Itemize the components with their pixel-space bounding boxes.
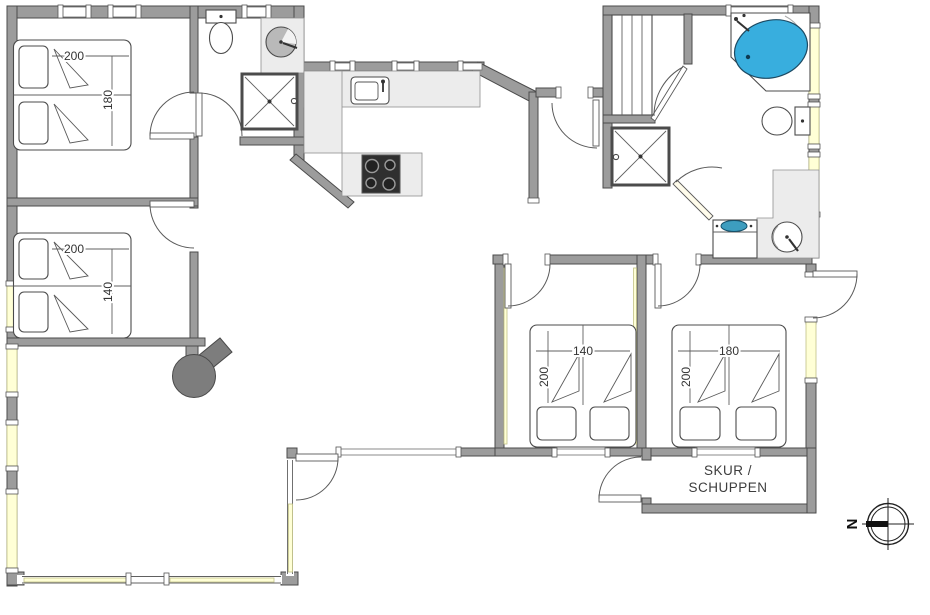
door-bathroom-right — [673, 167, 722, 220]
svg-text:SCHUPPEN: SCHUPPEN — [688, 480, 767, 495]
bed-dimension-label: 140 — [573, 344, 593, 358]
door-bathroom-top — [196, 93, 242, 136]
bed-dimension-label: 200 — [537, 367, 551, 387]
door-shed — [599, 457, 641, 502]
double-bed-bottom-right: 180 200 — [672, 325, 786, 447]
window-bay-walls — [17, 460, 294, 585]
sauna — [612, 15, 652, 115]
floor-plan-page: 200 180 200 140 140 200 180 200 — [0, 0, 930, 615]
kitchen — [304, 71, 480, 196]
floor-plan-drawing: 200 180 200 140 140 200 180 200 — [0, 0, 930, 615]
pillow — [590, 407, 629, 440]
bed-dimension-label: 180 — [101, 90, 115, 110]
door-bedroom-bottom-right — [655, 264, 700, 308]
washbasin-icon — [261, 18, 304, 73]
pillow — [19, 292, 48, 332]
bed-dimension-label: 200 — [64, 49, 84, 63]
kitchen-counter-left — [304, 71, 342, 153]
door-main-entrance — [552, 100, 599, 148]
door-bedroom-top-left — [150, 92, 194, 139]
door-exterior-east — [813, 271, 857, 318]
bed-dimension-label: 200 — [64, 242, 84, 256]
shower-icon — [242, 74, 297, 129]
pillow — [19, 239, 48, 279]
bed-dimension-label: 180 — [719, 344, 739, 358]
bathroom-top-left — [206, 10, 304, 129]
svg-text:SKUR /: SKUR / — [704, 463, 752, 478]
bed-dimension-label: 200 — [679, 367, 693, 387]
washbasin-icon-2 — [772, 222, 802, 252]
bay-window-south-1 — [24, 578, 128, 582]
double-bed-bottom-left: 140 200 — [530, 325, 636, 447]
kitchen-sink-icon — [351, 77, 389, 104]
double-bed-mid-left: 200 140 — [14, 233, 132, 338]
north-pointer — [866, 521, 888, 527]
door-bedroom-mid-left — [150, 201, 194, 248]
double-bed-top-left: 200 180 — [14, 40, 132, 150]
door-terrace-south — [296, 454, 338, 500]
toilet-icon — [206, 10, 236, 54]
bay-window-east — [289, 504, 293, 572]
pillow — [680, 407, 720, 440]
vanity-basin-icon — [713, 220, 757, 258]
pillow — [537, 407, 576, 440]
pillow — [736, 407, 776, 440]
pillow — [19, 46, 48, 88]
stove-range-icon — [362, 155, 400, 193]
shed-label: SKUR / SCHUPPEN — [688, 463, 767, 495]
pillow — [19, 102, 48, 144]
door-sauna — [651, 66, 687, 121]
corner-bathtub-icon — [728, 11, 815, 91]
toilet-icon-2 — [762, 107, 810, 135]
door-bedroom-bottom-left — [505, 264, 550, 308]
compass-rose: N — [843, 498, 914, 550]
wood-stove-icon — [173, 338, 233, 398]
shower-icon-2 — [612, 128, 669, 185]
bay-window-south-2 — [170, 578, 274, 582]
north-label: N — [843, 519, 860, 530]
bed-dimension-label: 140 — [101, 282, 115, 302]
